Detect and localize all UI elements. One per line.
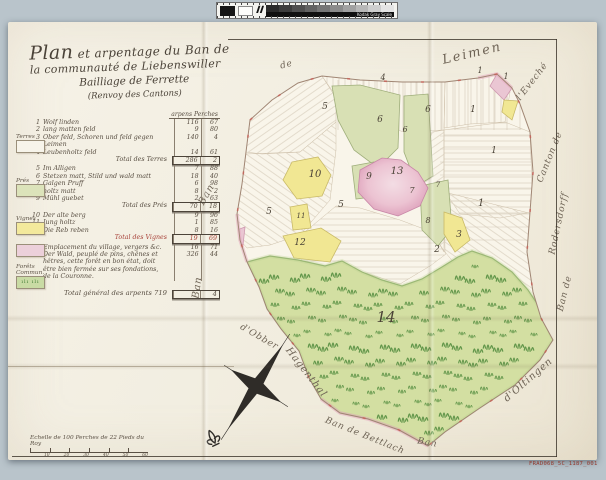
legend-total-row: Total des Prés7018 <box>30 202 220 211</box>
canton-name: Die Reb reben <box>43 227 174 234</box>
parcel-number-5: 5 <box>322 102 328 112</box>
perches-value: 16 <box>201 227 220 234</box>
legend-row: 8holtz matt82 <box>30 188 220 195</box>
boundary-label: de <box>279 59 294 72</box>
perches-value: 96 <box>201 212 220 219</box>
perches-value: 2 <box>201 188 220 195</box>
calibration-brand-bar: Kodak Gray Scale <box>266 12 394 17</box>
boundary-label: l'Eveché <box>514 60 550 102</box>
gray-patch-6 <box>343 5 356 12</box>
arpents-value: 9 <box>174 212 201 219</box>
gray-patch-2 <box>292 5 305 12</box>
canton-values: 788 <box>174 165 220 172</box>
canton-name: Total des Vignes <box>43 234 172 243</box>
gray-patch-4 <box>317 5 330 12</box>
arpents-value: 14 <box>174 149 201 156</box>
legend-row: 5Im Alligen788 <box>30 165 220 172</box>
arpents-value: 6 <box>174 180 201 187</box>
canton-values: 1969 <box>172 234 220 243</box>
canton-name: Wolf linden <box>43 119 174 126</box>
gray-patch-9 <box>381 5 394 12</box>
perches-value: 44 <box>201 251 220 281</box>
parcel-number-6: 6 <box>425 105 431 115</box>
canton-number <box>30 202 43 211</box>
legend-row: 13Emplacement du village, vergers &c.167… <box>30 244 220 251</box>
parcel-number-13: 13 <box>391 166 404 177</box>
parcel-number-8: 8 <box>425 216 430 225</box>
canton-values: 7018 <box>172 202 220 211</box>
canton-number: 1 <box>30 119 43 126</box>
parcel-number-5: 5 <box>338 200 344 210</box>
calibration-gray-patches <box>266 5 394 12</box>
legend-row: 12Die Reb reben816 <box>30 227 220 234</box>
canton-values: 4 <box>172 290 220 299</box>
swatch-color-box <box>16 140 45 153</box>
perches-value: 2 <box>200 157 219 164</box>
canton-values: 32644 <box>174 251 220 281</box>
perches-value: 4 <box>201 134 220 149</box>
perches-value: 69 <box>200 235 219 242</box>
canton-values: 1671 <box>174 244 220 251</box>
legend-table: arpens Perches 1Wolf linden116672lang ma… <box>30 111 220 299</box>
legend-swatch-item: Terres <box>16 134 56 153</box>
perches-value: 63 <box>201 195 220 202</box>
legend-swatch-item <box>16 244 56 257</box>
gray-patch-8 <box>368 5 381 12</box>
arpents-value: 19 <box>173 235 200 242</box>
scale-tick-number: 40 <box>89 453 109 458</box>
swatch-color-box <box>16 244 45 257</box>
canton-values: 2862 <box>172 156 220 165</box>
scale-tick <box>109 448 129 452</box>
legend-total-row: Total général des arpents 7194 <box>30 290 220 299</box>
arpents-value: 286 <box>173 157 200 164</box>
parcel-number-1: 1 <box>477 66 482 75</box>
scale-tick <box>30 448 50 452</box>
arpents-value: 18 <box>174 173 201 180</box>
canton-name: Der alte berg <box>43 212 174 219</box>
parcel-number-5: 5 <box>266 207 272 217</box>
parcel-number-7: 7 <box>436 181 441 189</box>
arpents-value: 9 <box>174 126 201 133</box>
canton-values: 1461 <box>174 149 220 156</box>
canton-name: Mühl guebet <box>43 195 174 202</box>
parcel-number-9: 9 <box>366 172 372 182</box>
frame-line-top <box>228 39 557 40</box>
parcel-number-1: 1 <box>503 72 508 81</box>
scale-tick <box>128 448 148 452</box>
legend-swatch-item: Forêts Commun.ılı ılı <box>16 264 56 289</box>
canton-number: 5 <box>30 165 43 172</box>
arpents-value: 2 <box>174 195 201 202</box>
swatch-color-box: ılı ılı <box>16 276 45 289</box>
arpents-value: 116 <box>174 119 201 126</box>
canton-values: 11667 <box>174 119 220 126</box>
canton-values: 698 <box>174 180 220 187</box>
scanned-map-page: { "calibration": { "label": "Kodak Gray … <box>0 0 606 480</box>
title-initial: Plan <box>29 41 74 65</box>
parcel-number-11: 11 <box>297 212 306 220</box>
boundary-label: d'Obber <box>238 322 280 352</box>
legend-row: 4Leubenholtz feld1461 <box>30 149 220 156</box>
calibration-strip: II Kodak Gray Scale <box>216 2 398 19</box>
fleur-de-lis-icon <box>203 428 222 448</box>
perches-value: 61 <box>201 149 220 156</box>
perches-value: 88 <box>201 165 220 172</box>
canton-number: 2 <box>30 126 43 133</box>
canton-name: lang matten feld <box>43 126 174 133</box>
legend-row: 7Galgen Pruff698 <box>30 180 220 187</box>
parcel-number-1: 1 <box>470 105 476 115</box>
scale-tick <box>69 448 89 452</box>
perches-value: 98 <box>201 180 220 187</box>
arpents-value: 16 <box>174 244 201 251</box>
scale-numbers: 102030405060 <box>30 453 148 458</box>
legend-total-row: Total des Terres2862 <box>30 156 220 165</box>
perches-value: 67 <box>201 119 220 126</box>
canton-name: holtz matt <box>43 188 174 195</box>
swatch-label: Forêts Commun. <box>16 264 56 276</box>
perches-value: 85 <box>201 219 220 226</box>
perches-value: 40 <box>201 173 220 180</box>
canton-values: 980 <box>174 126 220 133</box>
perches-value: 71 <box>201 244 220 251</box>
canton-values: 816 <box>174 227 220 234</box>
legend-swatch-item: Vignes <box>16 216 56 235</box>
fold-line <box>8 366 234 367</box>
map-title: Plan et arpentage du Ban de la communaut… <box>29 41 239 103</box>
scale-tick-number: 30 <box>69 453 89 458</box>
parcel-number-12: 12 <box>294 238 306 248</box>
boundary-label: Rodersdorff <box>547 191 570 257</box>
parcel-number-3: 3 <box>456 230 462 240</box>
calibration-white-patch <box>238 6 253 16</box>
gray-patch-3 <box>305 5 318 12</box>
canton-name: Total des Terres <box>43 156 172 165</box>
parcel-number-6: 6 <box>377 115 383 125</box>
legend-column-header: arpens Perches <box>30 111 220 119</box>
archive-reference-code: FRAD068_5C_1187_001 <box>529 461 598 467</box>
legend-row: 9Mühl guebet263 <box>30 195 220 202</box>
canton-name: Galgen Pruff <box>43 180 174 187</box>
scale-tick <box>89 448 109 452</box>
canton-values: 82 <box>174 188 220 195</box>
scale-tick-number: 50 <box>109 453 129 458</box>
scale-tick-number: 60 <box>128 453 148 458</box>
boundary-label: Canton de <box>535 130 565 184</box>
scale-tick-number: 10 <box>30 453 50 458</box>
scale-bar: Echelle de 100 Perches de 22 Pieds du Ro… <box>30 435 148 458</box>
parcel-number-6: 6 <box>402 125 407 134</box>
arpents-value <box>173 291 200 298</box>
scale-tick <box>50 448 70 452</box>
legend-row: 3Ober feld, Schoren und feld gegen Leime… <box>30 134 220 149</box>
legend-row: 11Jung holtz185 <box>30 219 220 226</box>
parcel-number-1: 1 <box>478 198 484 209</box>
swatch-color-box <box>16 222 45 235</box>
legend-total-row: Total des Vignes1969 <box>30 234 220 243</box>
canton-name: Der Wald, peuplé de pins, chênes et hêtr… <box>43 251 174 281</box>
canton-number <box>30 234 43 243</box>
canton-number <box>30 156 43 165</box>
legend-swatch-item: Prés <box>16 178 56 197</box>
perches-value: 4 <box>200 291 219 298</box>
canton-values: 263 <box>174 195 220 202</box>
canton-values: 1404 <box>174 134 220 149</box>
gray-patch-5 <box>330 5 343 12</box>
boundary-label: Leimen <box>440 39 504 68</box>
arpents-value: 8 <box>174 188 201 195</box>
legend-row: 6Stetzen matt, Stild und wald matt1840 <box>30 173 220 180</box>
canton-name: Im Alligen <box>43 165 174 172</box>
arpents-value: 326 <box>174 251 201 281</box>
legend-row: 2lang matten feld980 <box>30 126 220 133</box>
gray-patch-7 <box>356 5 369 12</box>
parcel-number-14: 14 <box>376 308 395 326</box>
parcel-number-1: 1 <box>491 146 497 156</box>
legend-row: 14Der Wald, peuplé de pins, chênes et hê… <box>30 251 220 281</box>
canton-number <box>30 290 43 299</box>
legend-row: 1Wolf linden11667 <box>30 119 220 126</box>
arpents-value: 1 <box>174 219 201 226</box>
boundary-label: Ban de <box>556 275 575 314</box>
canton-name: Jung holtz <box>43 219 174 226</box>
canton-name: Total des Prés <box>43 202 172 211</box>
canton-name: Leubenholtz feld <box>43 149 174 156</box>
swatch-color-box <box>16 184 45 197</box>
canton-name: Total général des arpents 719 <box>43 290 172 299</box>
arpents-value: 8 <box>174 227 201 234</box>
parcel-number-2: 2 <box>433 245 440 255</box>
perches-value: 18 <box>200 203 219 210</box>
calibration-scale: Kodak Gray Scale <box>266 5 394 17</box>
gray-patch-0 <box>266 5 279 12</box>
canton-values: 185 <box>174 219 220 226</box>
arpents-value: 7 <box>174 165 201 172</box>
parcel-number-10: 10 <box>309 169 322 180</box>
scale-tick-number: 20 <box>50 453 70 458</box>
calibration-black-patch <box>220 6 235 16</box>
canton-name: Emplacement du village, vergers &c. <box>43 244 174 251</box>
arpents-value: 70 <box>173 203 200 210</box>
canton-values: 996 <box>174 212 220 219</box>
canton-name: Ober feld, Schoren und feld gegen Leimen <box>43 134 174 149</box>
scale-caption: Echelle de 100 Perches de 22 Pieds du Ro… <box>30 435 148 447</box>
canton-name: Stetzen matt, Stild und wald matt <box>43 173 174 180</box>
canton-values: 1840 <box>174 173 220 180</box>
arpents-value: 140 <box>174 134 201 149</box>
frame-line-right <box>556 39 557 457</box>
calibration-separator: II <box>254 5 265 16</box>
legend-row: 10Der alte berg996 <box>30 212 220 219</box>
perches-value: 80 <box>201 126 220 133</box>
gray-patch-1 <box>279 5 292 12</box>
parcel-number-4: 4 <box>379 73 385 82</box>
